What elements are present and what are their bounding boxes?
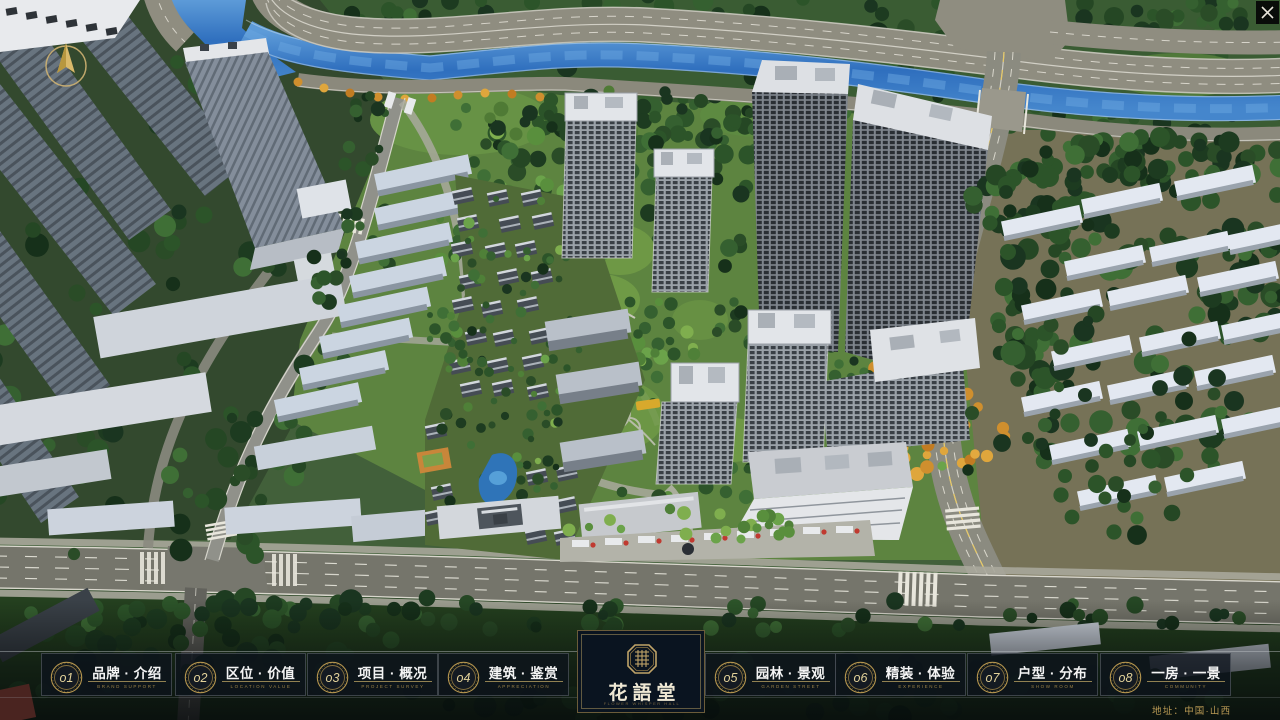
svg-text:o8: o8 — [1119, 671, 1133, 685]
svg-text:o7: o7 — [985, 671, 1000, 685]
svg-text:o2: o2 — [193, 671, 207, 685]
svg-text:o1: o1 — [60, 671, 74, 685]
svg-text:o3: o3 — [325, 671, 339, 685]
svg-text:o4: o4 — [456, 671, 470, 685]
svg-text:o5: o5 — [723, 671, 737, 685]
svg-text:o6: o6 — [853, 671, 867, 685]
